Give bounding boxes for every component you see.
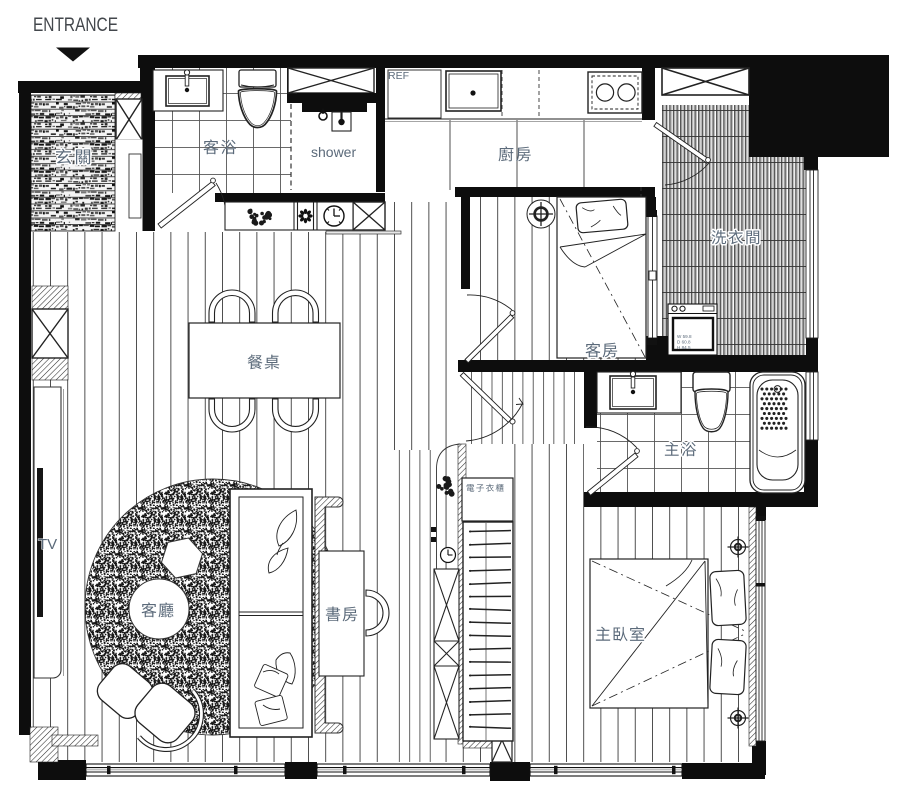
svg-text:D 60.8: D 60.8 [677,340,691,345]
svg-text:shower: shower [311,144,356,160]
svg-text:W 59.8: W 59.8 [677,334,692,339]
svg-text:ENTRANCE: ENTRANCE [33,14,118,36]
svg-text:H 84.5: H 84.5 [677,345,691,350]
svg-text:TV: TV [38,536,57,553]
svg-text:REF: REF [388,70,409,82]
